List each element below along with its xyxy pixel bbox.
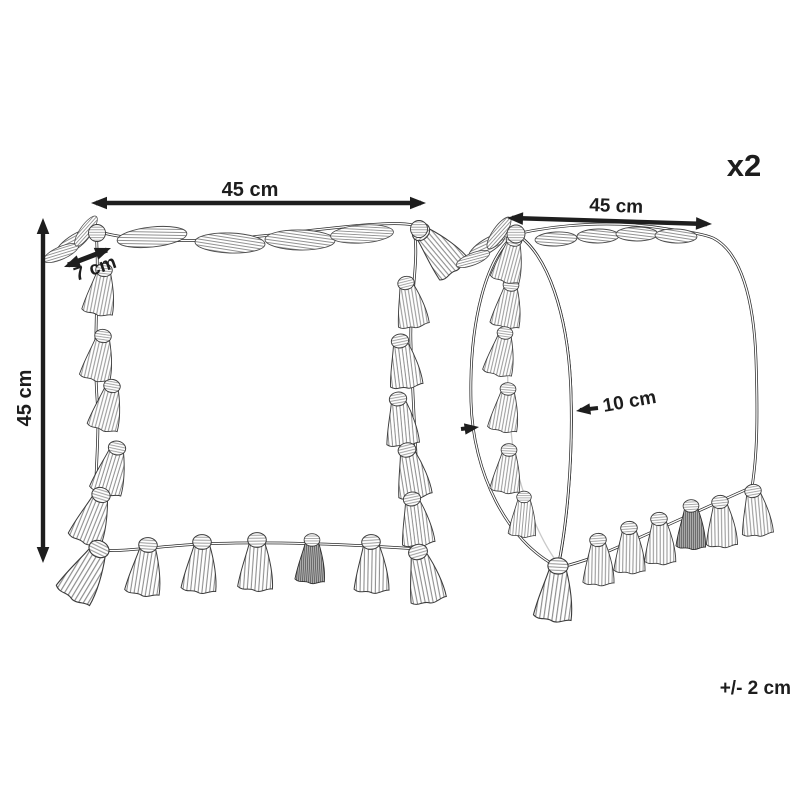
side-view-cushion <box>454 214 774 623</box>
dimension-line <box>512 218 707 224</box>
front-width-dimension: 45 cm <box>91 179 426 209</box>
corner-knot <box>411 221 428 238</box>
diagram-canvas: 45 cm 45 cm 7 cm 45 cm 10 cm x2 +/- 2 cm <box>0 0 800 800</box>
arrowhead-right-icon <box>696 217 712 230</box>
corner-knot <box>507 225 525 243</box>
tassel <box>79 327 117 383</box>
tassel <box>533 557 574 623</box>
quantity-label: x2 <box>727 148 761 183</box>
tolerance-label: +/- 2 cm <box>720 678 791 699</box>
side-top-left-corner-tassel <box>454 214 527 285</box>
front-cushion-outline <box>95 224 418 551</box>
front-height-dimension: 45 cm <box>14 218 49 563</box>
tassel <box>396 541 447 609</box>
arrowhead-left-icon <box>91 197 107 210</box>
arrowhead-right-icon <box>410 197 426 210</box>
front-height-label: 45 cm <box>14 370 36 427</box>
fringe-puff <box>577 229 619 244</box>
corner-knot <box>89 225 106 242</box>
product-dimension-diagram: 45 cm 45 cm 7 cm 45 cm 10 cm x2 +/- 2 cm <box>0 0 800 800</box>
arrowhead-down-icon <box>37 547 50 563</box>
fringe-puff <box>616 227 658 241</box>
arrowhead-up-icon <box>37 218 50 234</box>
side-width-label: 45 cm <box>589 195 644 218</box>
front-width-label: 45 cm <box>222 179 279 201</box>
